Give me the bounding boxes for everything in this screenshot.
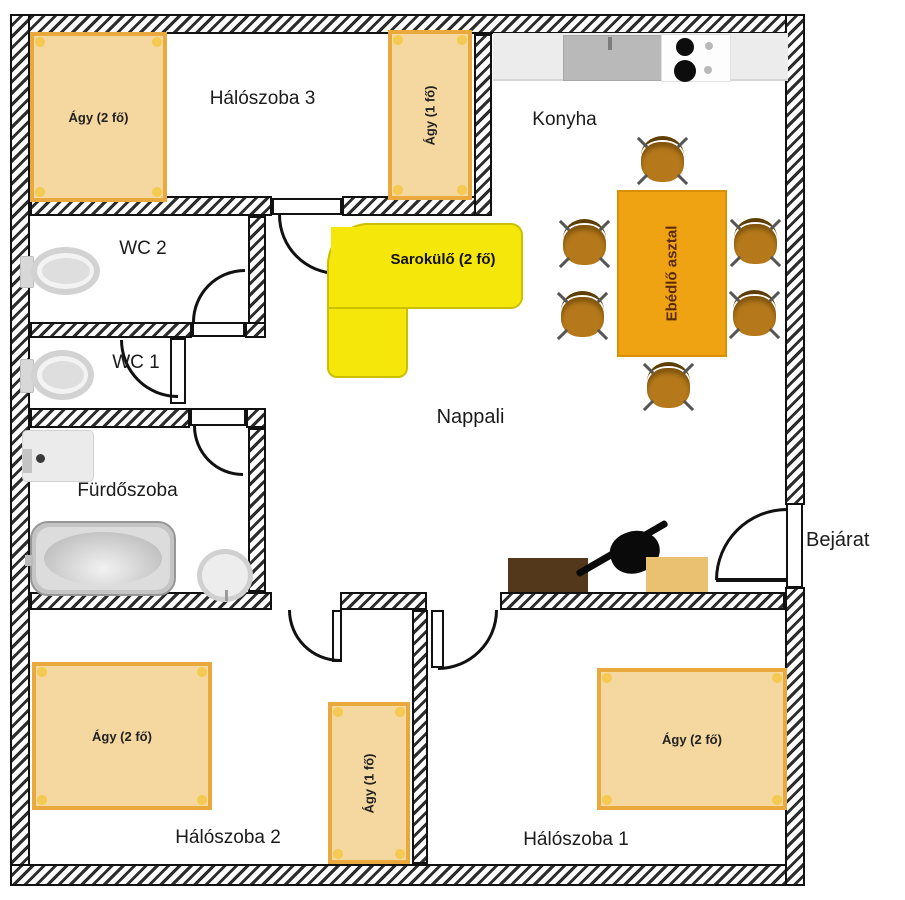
bedroom3-single-bed: Ágy (1 fő) [388, 30, 472, 200]
bedroom2-single-bed: Ágy (1 fő) [328, 702, 410, 864]
round-sink-icon [197, 549, 253, 602]
stove-burner-icon [676, 38, 694, 56]
bedroom3-double-bed-label: Ágy (2 fő) [69, 110, 129, 125]
bedroom3-double-bed: Ágy (2 fő) [30, 32, 167, 202]
room-label-bedroom2: Hálószoba 2 [128, 827, 328, 849]
wall-bathroom-top [30, 408, 190, 428]
wall-outer-right-upper [785, 14, 805, 505]
toilet-icon-wc2 [20, 247, 100, 295]
wall-outer-bottom [10, 864, 805, 886]
entrance-door-leaf [786, 503, 803, 588]
room-label-bedroom3: Hálószoba 3 [165, 88, 360, 110]
bedroom1-double-bed: Ágy (2 fő) [597, 668, 787, 810]
kitchen-stove [661, 34, 731, 82]
washbasin-icon [22, 430, 94, 482]
bedroom3-door-leaf [272, 198, 342, 215]
wall-bedroom3-kitchen [474, 34, 492, 216]
bathtub-icon [30, 521, 176, 596]
room-label-wc1: WC 1 [96, 352, 176, 374]
corner-sofa-label: Sarokülő (2 fő) [362, 251, 524, 268]
chair-icon [558, 290, 607, 340]
chair-icon [560, 218, 609, 268]
wall-main-horizontal-right [500, 592, 785, 610]
dining-table-label: Ebédlő asztal [663, 226, 680, 322]
wall-outer-right-lower [785, 587, 805, 886]
wall-wc2-bottom-right [245, 322, 266, 338]
chair-icon [730, 289, 779, 339]
wc2-door-arc [192, 269, 245, 322]
chair-icon [731, 217, 780, 267]
bedroom1-double-bed-label: Ágy (2 fő) [662, 732, 722, 747]
room-label-entrance: Bejárat [806, 529, 901, 552]
wall-wc2-right [248, 216, 266, 338]
stove-burner-icon [674, 60, 696, 82]
wall-bedroom2-bedroom1 [412, 610, 428, 864]
bedroom2-double-bed-label: Ágy (2 fő) [92, 729, 152, 744]
floor-plan: Hálószoba 3 Konyha WC 2 WC 1 Fürdőszoba … [0, 0, 905, 900]
bedroom2-single-bed-label: Ágy (1 fő) [361, 753, 376, 813]
room-label-bathroom: Fürdőszoba [50, 480, 205, 502]
room-label-bedroom1: Hálószoba 1 [476, 829, 676, 851]
entrance-door-open-leaf [716, 578, 787, 582]
chair-icon [638, 135, 687, 185]
chair-icon [644, 361, 693, 411]
bedroom3-single-bed-label: Ágy (1 fő) [422, 85, 437, 145]
kitchen-faucet-icon [608, 37, 612, 50]
bedroom2-double-bed: Ágy (2 fő) [32, 662, 212, 810]
bathroom-door-arc [193, 426, 243, 476]
room-label-living-room: Nappali [403, 406, 538, 429]
stove-burner-icon [705, 42, 713, 50]
dining-table: Ebédlő asztal [617, 190, 727, 357]
room-label-kitchen: Konyha [512, 109, 617, 131]
bedroom2-door-arc [288, 610, 340, 662]
kitchen-sink [563, 35, 662, 81]
wall-main-horizontal-mid [340, 592, 427, 610]
entrance-door-arc [715, 508, 787, 580]
wall-wc2-bottom-left [30, 322, 192, 338]
wc2-door-leaf [192, 322, 245, 337]
toilet-icon-wc1 [20, 350, 94, 400]
bathroom-door-leaf [190, 408, 246, 426]
room-label-wc2: WC 2 [103, 238, 183, 260]
stove-burner-icon [704, 66, 712, 74]
entry-cabinet [646, 557, 708, 592]
bedroom1-door-arc [438, 610, 498, 670]
wall-bathroom-top-corner [246, 408, 266, 428]
